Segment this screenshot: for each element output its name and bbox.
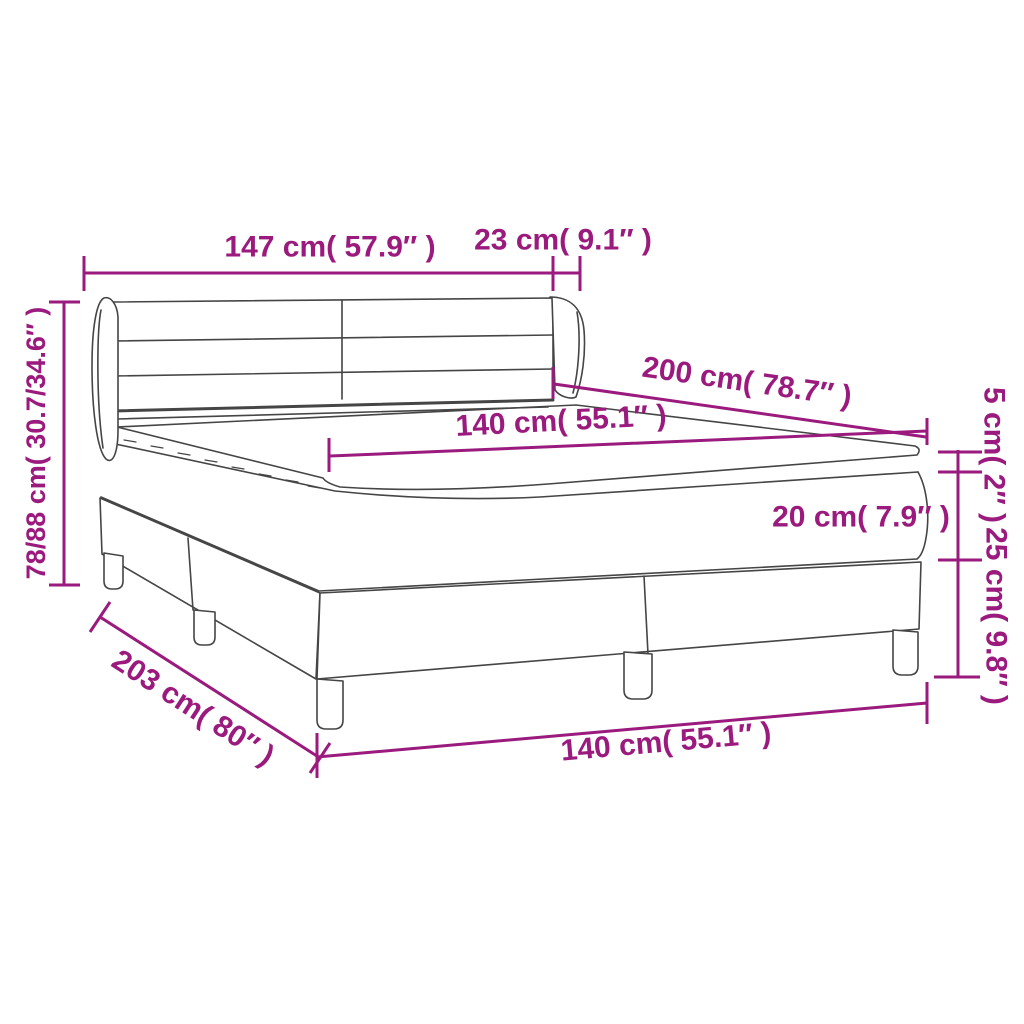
dim-label-headboard-width: 147 cm( 57.9″ ) bbox=[224, 231, 435, 264]
leg-front-left bbox=[317, 679, 343, 729]
leg-mid-left bbox=[194, 610, 215, 645]
dim-headboard-width: 147 cm( 57.9″ ) 23 cm( 9.1″ ) bbox=[84, 224, 652, 292]
dim-label-base-width: 140 cm( 55.1″ ) bbox=[559, 716, 772, 767]
leg-front-right bbox=[893, 630, 918, 675]
leg-back-left bbox=[104, 553, 123, 589]
dim-label-topper-height: 5 cm( 2″ ) bbox=[978, 387, 1011, 523]
dim-label-overall-length: 203 cm( 80″ ) bbox=[106, 643, 280, 772]
dim-overall-height: 78/88 cm( 30.7/34.6″ ) bbox=[21, 302, 80, 585]
dim-label-bed-length: 200 cm( 78.7″ ) bbox=[640, 351, 854, 414]
dim-label-wing-depth: 23 cm( 9.1″ ) bbox=[474, 224, 652, 257]
dim-line-right-vertical bbox=[934, 450, 982, 677]
base-front-face bbox=[317, 562, 921, 679]
dim-label-base-height: 25 cm( 9.8″ ) bbox=[980, 527, 1013, 705]
dim-base-width: 140 cm( 55.1″ ) bbox=[317, 682, 927, 778]
dim-label-overall-height: 78/88 cm( 30.7/34.6″ ) bbox=[21, 307, 51, 580]
headboard-left-wing bbox=[92, 298, 118, 461]
headboard-panel bbox=[113, 298, 553, 411]
dim-line-left-vertical bbox=[49, 302, 80, 585]
leg-front-middle bbox=[624, 652, 652, 699]
bed-dimension-diagram: 147 cm( 57.9″ ) 23 cm( 9.1″ ) 78/88 cm( … bbox=[0, 0, 1024, 1024]
dim-label-mattress-height: 20 cm( 7.9″ ) bbox=[772, 501, 950, 534]
